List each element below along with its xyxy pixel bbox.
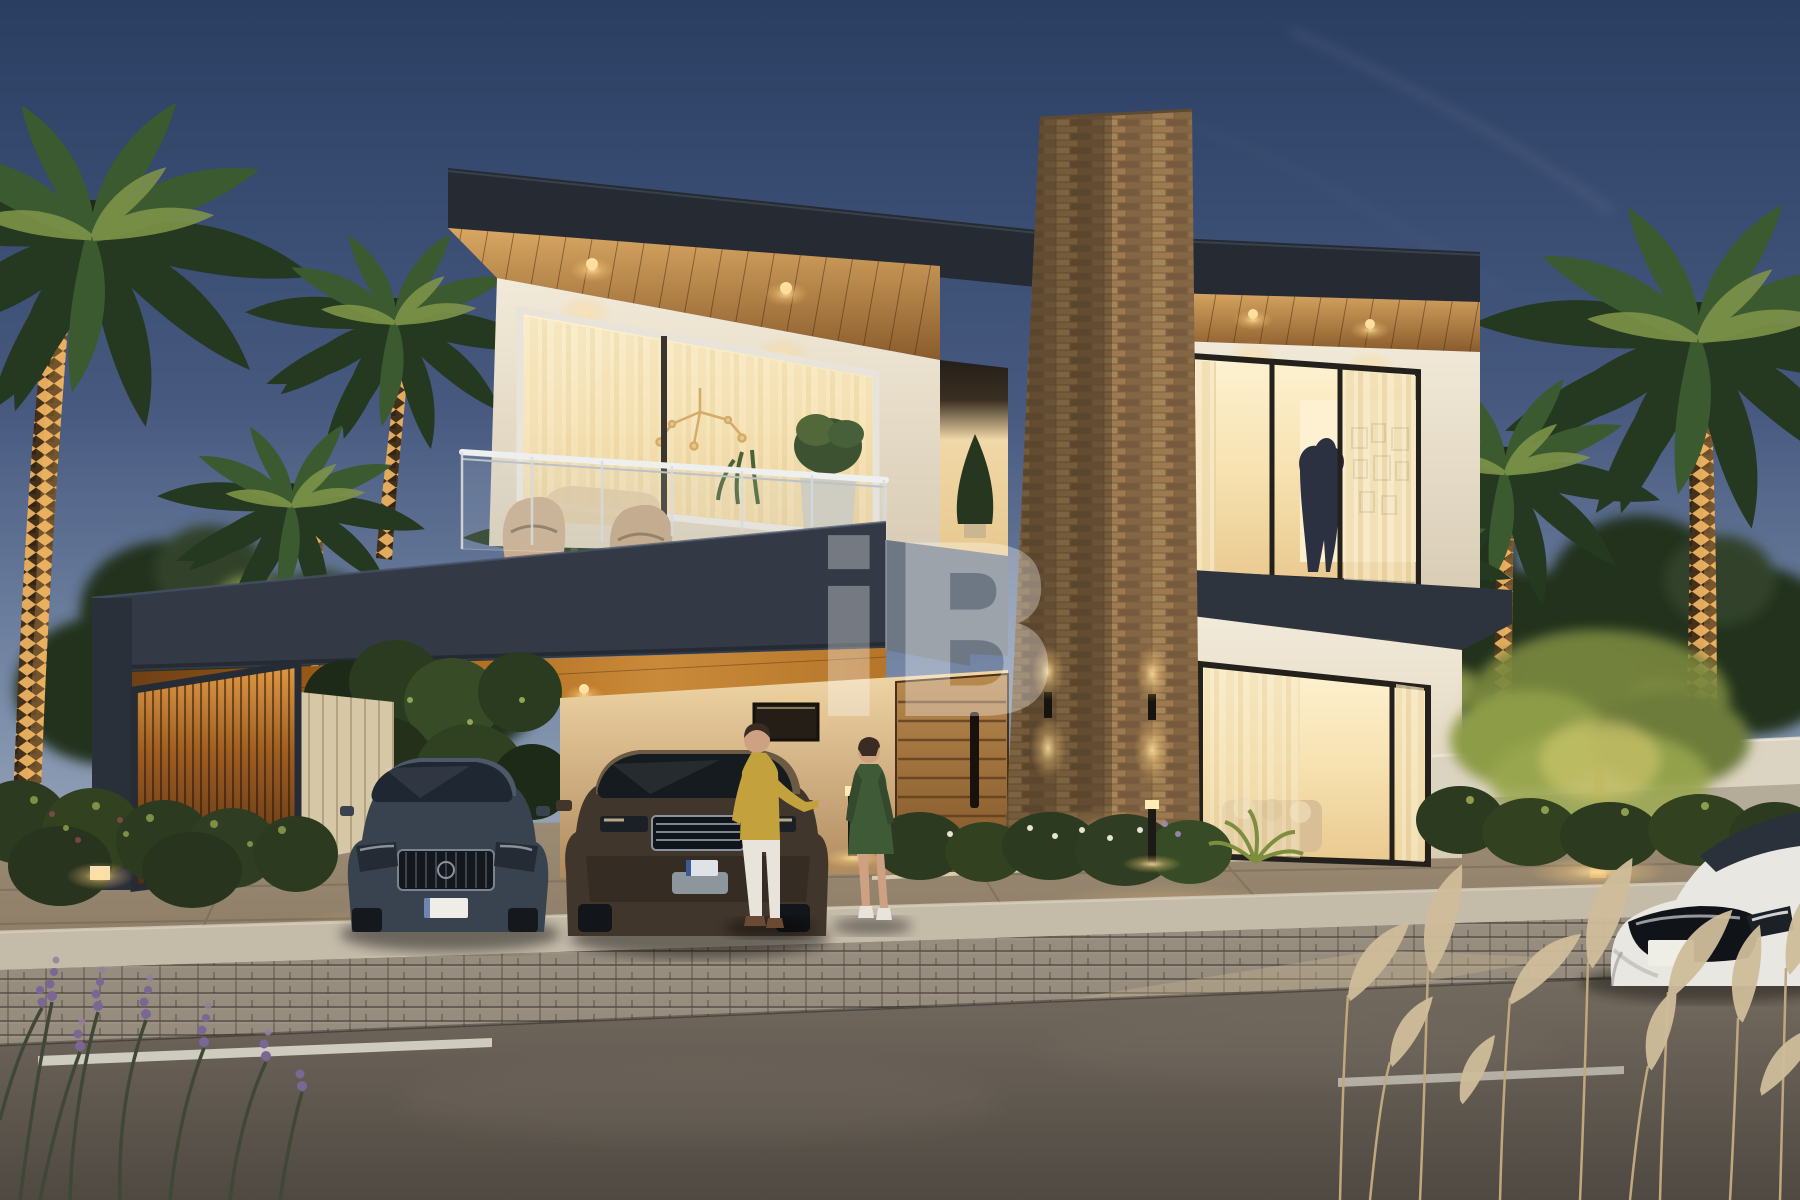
upper-right-window (1192, 356, 1418, 585)
screenshot-root: iB (0, 0, 1800, 1200)
wall-light-left (66, 862, 134, 890)
watermark-text: iB (808, 496, 1059, 773)
villa-dusk-render: iB (0, 0, 1800, 1200)
lower-right-window (1200, 664, 1428, 864)
flower-bed-center (874, 812, 1232, 886)
